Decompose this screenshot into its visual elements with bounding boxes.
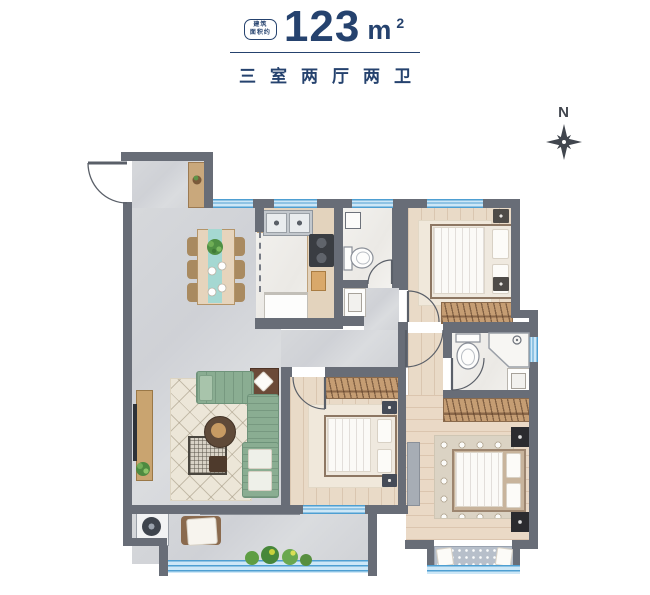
kitchen-double-sink: [263, 210, 313, 236]
wall: [529, 362, 538, 548]
lounge-cushion: [186, 517, 218, 546]
pillow: [377, 419, 392, 443]
sofa-cushion: [248, 471, 272, 491]
nightstand: [493, 209, 509, 223]
wall: [443, 322, 529, 333]
bedroom3-bed: [324, 415, 397, 477]
wall: [132, 505, 408, 514]
bedroom3-wall: [281, 377, 290, 505]
compass-rose-icon: [543, 121, 585, 163]
cutting-board: [311, 271, 326, 291]
mattress: [455, 452, 503, 507]
kitchen-open-boundary: [259, 232, 263, 292]
master-bench: [407, 442, 420, 506]
sofa-section: [196, 371, 254, 404]
washer-drum: [142, 517, 161, 536]
header-divider: [230, 52, 420, 53]
mattress: [327, 418, 371, 472]
nightstand: [382, 474, 397, 487]
nightstand: [511, 512, 529, 532]
wall: [512, 540, 538, 549]
dining-table-runner: [208, 229, 222, 303]
wall: [123, 538, 167, 546]
nightstand: [511, 427, 529, 447]
window: [427, 199, 483, 208]
master-wardrobe: [443, 398, 531, 422]
wall: [368, 514, 377, 576]
bedroom3-window: [303, 505, 365, 514]
balcony-window: [168, 560, 368, 573]
bedroom3-wall: [398, 367, 406, 514]
window: [274, 199, 317, 208]
area-exponent: 2: [396, 15, 404, 31]
compass-north-label: N: [543, 104, 585, 121]
area-unit: m: [367, 17, 391, 44]
sink-basin: [266, 213, 287, 233]
kitchen-wall: [255, 318, 343, 329]
master-bed: [452, 449, 526, 512]
sofa-cushion: [248, 449, 272, 469]
bath1-corner-basin: [345, 212, 361, 229]
entry-door: [88, 163, 127, 203]
wall: [121, 152, 213, 161]
bay-window: [427, 565, 520, 574]
stool: [209, 456, 227, 472]
area-badge-line2: 面积约: [250, 30, 271, 38]
layout-subtitle: 三室两厅两卫: [14, 62, 650, 87]
bath1-wall: [343, 280, 368, 288]
pillow: [506, 453, 521, 478]
kitchen-wall: [255, 208, 264, 232]
wall: [123, 202, 132, 538]
header: 建筑 面积约 123 m 2 三室两厅两卫: [0, 0, 650, 87]
kitchen-bath-wall: [334, 208, 343, 318]
pillow: [377, 449, 392, 473]
bath2-wall: [443, 390, 529, 398]
wall: [529, 310, 538, 337]
bedroom2-wardrobe: [441, 302, 513, 324]
tv-cabinet: [136, 390, 153, 481]
vanity-basin: [348, 293, 362, 312]
area-title: 建筑 面积约 123 m 2: [0, 0, 650, 45]
sofa-chaise: [242, 442, 279, 498]
area-badge: 建筑 面积约: [244, 19, 277, 40]
vanity-sink-counter: [344, 288, 366, 317]
vanity-basin: [511, 373, 526, 389]
sink-basin: [289, 213, 310, 233]
bedroom3-wall: [281, 367, 292, 377]
nightstand: [382, 401, 397, 414]
nightstand: [493, 277, 509, 291]
gas-stove: [309, 234, 334, 267]
hallway-floor: [281, 330, 399, 367]
wall: [511, 199, 520, 318]
area-value: 123: [284, 8, 360, 45]
pillow: [492, 229, 509, 259]
pillow: [506, 483, 521, 508]
wall: [405, 540, 434, 549]
master-corridor-floor: [408, 333, 443, 398]
bedroom3-wall: [325, 367, 399, 377]
area-badge-line1: 建筑: [250, 22, 271, 30]
window: [213, 199, 253, 208]
bath2-wall: [443, 333, 452, 358]
mattress: [433, 227, 485, 294]
lounge-chair: [181, 516, 221, 545]
coffee-table-round: [204, 416, 236, 448]
sofa-pillow: [199, 375, 213, 401]
vanity-wall: [334, 316, 364, 326]
tv-screen: [133, 404, 137, 461]
floorplan-page: 建筑 面积约 123 m 2 三室两厅两卫 N: [0, 0, 650, 595]
window: [352, 199, 393, 208]
bedroom3-wardrobe: [325, 377, 400, 399]
wall: [159, 546, 168, 576]
bedroom2-wall: [399, 208, 408, 290]
coffee-table-tray: [211, 423, 226, 438]
wall: [398, 322, 408, 367]
bath2-window: [529, 337, 538, 362]
hallway-floor-upper: [364, 288, 399, 330]
compass: N: [543, 104, 585, 168]
